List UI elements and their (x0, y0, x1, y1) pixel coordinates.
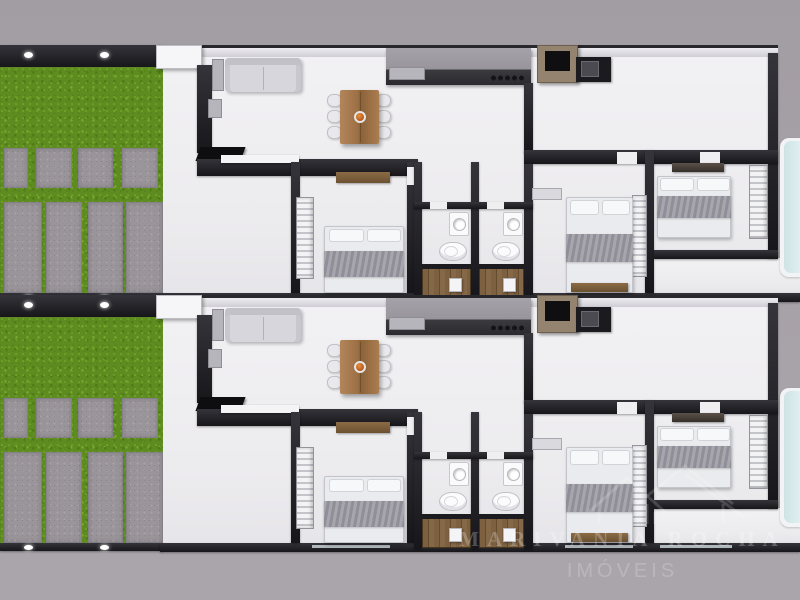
table-centerpiece (354, 111, 366, 123)
cabinet-cap (208, 99, 222, 118)
paver-strip (88, 202, 123, 293)
paver-strip (88, 452, 123, 543)
door-gap (487, 202, 504, 209)
counter-appliance (389, 317, 425, 330)
shower-valve (503, 278, 516, 292)
paver-square (78, 148, 113, 188)
pool-deck-floor (653, 258, 800, 293)
bed-foot-bench (571, 283, 628, 292)
bed-blanket (324, 501, 404, 527)
yard-light (100, 302, 109, 308)
floor-plan-scene: MARIVANIA ROCHA IMÓVEIS (0, 0, 800, 600)
bath-wall-mid (471, 162, 479, 299)
toilet (492, 492, 520, 511)
bathroom-sink (503, 462, 523, 486)
shower-floor (479, 265, 524, 298)
bed-pillow (697, 178, 730, 191)
paver-strip (4, 202, 42, 293)
shower-valve (503, 528, 516, 542)
door-gap (430, 452, 447, 459)
hall-wall (524, 333, 533, 403)
bath-wall-left (414, 412, 422, 549)
bed-blanket (324, 251, 404, 277)
entry-pillar (156, 295, 202, 319)
bathroom-sink (449, 462, 469, 486)
paver-strip (46, 452, 82, 543)
door-gap (617, 152, 637, 164)
shower-glass (422, 264, 471, 269)
pool (784, 141, 800, 273)
oven-microwave (537, 45, 578, 83)
shower-valve (449, 528, 462, 542)
bed-pillow (697, 428, 730, 441)
paver-square (78, 398, 113, 438)
bedroom3-wardrobe (749, 415, 768, 489)
bath-wall-mid (471, 412, 479, 549)
tv-bench (221, 405, 299, 413)
bedroom1-wardrobe (296, 447, 314, 529)
window-strip (660, 545, 732, 548)
bed-pillow (602, 200, 630, 215)
hall-wall (524, 83, 533, 153)
door-gap (487, 452, 504, 459)
bedroom2-wardrobe (632, 445, 647, 527)
bedroom1-shelf (336, 422, 390, 433)
bed-pillow (660, 178, 694, 191)
sofa (225, 308, 301, 342)
bed-pillow (602, 450, 630, 465)
watermark-subtitle: IMÓVEIS (430, 560, 800, 583)
shower-glass (479, 514, 524, 519)
paver-strip (4, 452, 42, 543)
bedroom2-wardrobe (632, 195, 647, 277)
bedroom3-wardrobe (749, 165, 768, 239)
bed-pillow (329, 479, 364, 492)
bed-pillow (660, 428, 694, 441)
bedroom1-shelf (336, 172, 390, 183)
bedroom3-bottom-wall (654, 250, 778, 259)
entry-pillar (156, 45, 202, 69)
sofa (225, 58, 301, 92)
paver-square (122, 148, 158, 188)
door-gap (430, 202, 447, 209)
shower-floor (422, 265, 471, 298)
shower-glass (422, 514, 471, 519)
bed-blanket (657, 196, 731, 218)
shower-floor (422, 515, 471, 548)
shower-valve (449, 278, 462, 292)
shower-glass (479, 264, 524, 269)
bedroom1-wardrobe (296, 197, 314, 279)
sofa-side-table (212, 309, 224, 341)
cabinet-cap (208, 349, 222, 368)
bath-wall-right (524, 164, 533, 299)
bathroom-sink (503, 212, 523, 236)
paver-square (36, 398, 72, 438)
sink-basin (581, 311, 599, 327)
pool (784, 391, 800, 523)
bed-pillow (570, 450, 599, 465)
bed-pillow (367, 479, 401, 492)
table-centerpiece (354, 361, 366, 373)
pool-deck-floor (653, 508, 800, 543)
bedroom3-shelf (672, 163, 724, 172)
toilet (439, 492, 467, 511)
shower-floor (479, 515, 524, 548)
yard-light (24, 302, 33, 308)
yard-light (100, 52, 109, 58)
bed-blanket (566, 484, 633, 512)
bedroom2-dresser (532, 438, 562, 450)
unit-1 (0, 45, 800, 295)
paver-square (122, 398, 158, 438)
yard-light (24, 52, 33, 58)
counter-appliance (389, 67, 425, 80)
sink-basin (581, 61, 599, 77)
bedroom3-shelf (672, 413, 724, 422)
tv-bench (221, 155, 299, 163)
bathroom-sink (449, 212, 469, 236)
bedroom2-dresser (532, 188, 562, 200)
yard-light (100, 545, 109, 550)
bed-pillow (570, 200, 599, 215)
window-strip (312, 545, 390, 548)
bed-pillow (329, 229, 364, 242)
stove-knobs (490, 73, 524, 83)
oven-microwave (537, 295, 578, 333)
sofa-side-table (212, 59, 224, 91)
bath-wall-right (524, 414, 533, 549)
paver-strip (126, 452, 163, 543)
window-strip (565, 545, 633, 548)
bath-wall-left (414, 162, 422, 299)
paver-square (36, 148, 72, 188)
bedroom3-bottom-wall (654, 500, 778, 509)
bed-blanket (657, 446, 731, 468)
paver-square (4, 148, 28, 188)
paver-strip (46, 202, 82, 293)
toilet (492, 242, 520, 261)
paver-strip (126, 202, 163, 293)
bed-pillow (367, 229, 401, 242)
yard-light (24, 545, 33, 550)
stove-knobs (490, 323, 524, 333)
unit-2 (0, 295, 800, 545)
paver-square (4, 398, 28, 438)
door-gap (617, 402, 637, 414)
bed-foot-bench (571, 533, 628, 542)
toilet (439, 242, 467, 261)
bed-blanket (566, 234, 633, 262)
